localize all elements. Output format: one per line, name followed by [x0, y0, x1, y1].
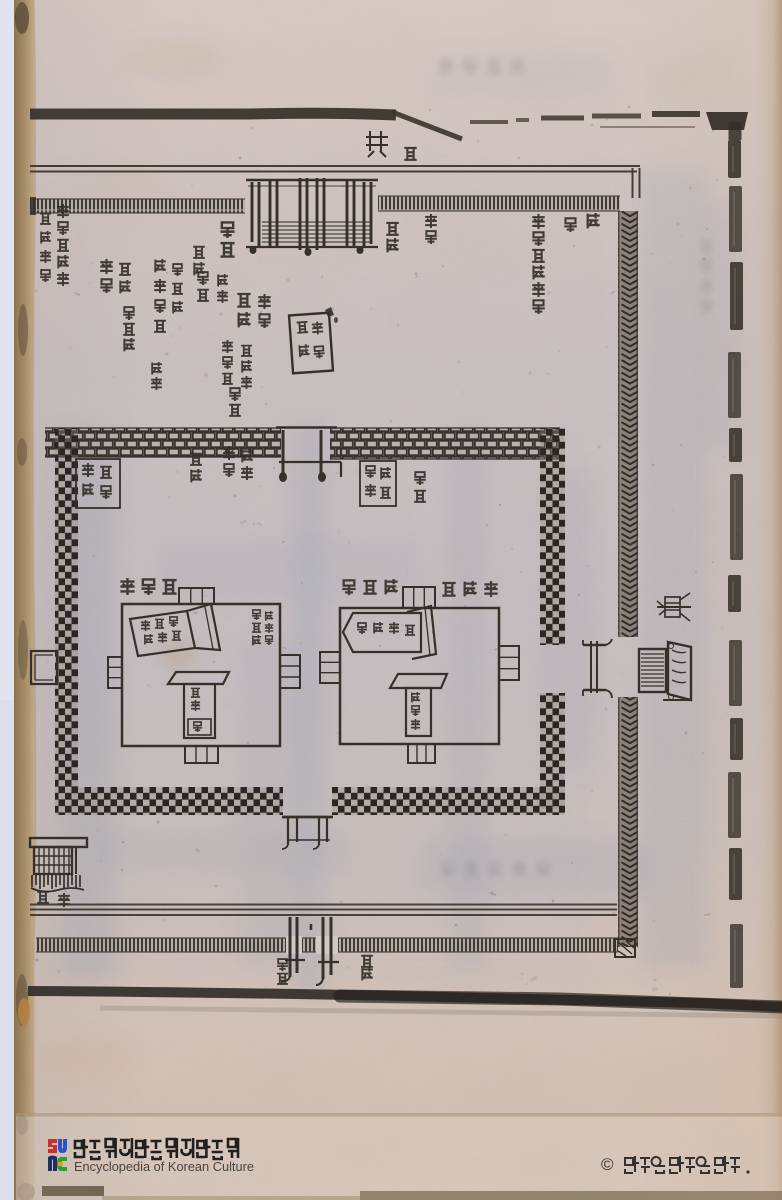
svg-text:Encyclopedia of Korean Culture: Encyclopedia of Korean Culture [74, 1159, 254, 1174]
svg-text:©: © [601, 1155, 614, 1174]
